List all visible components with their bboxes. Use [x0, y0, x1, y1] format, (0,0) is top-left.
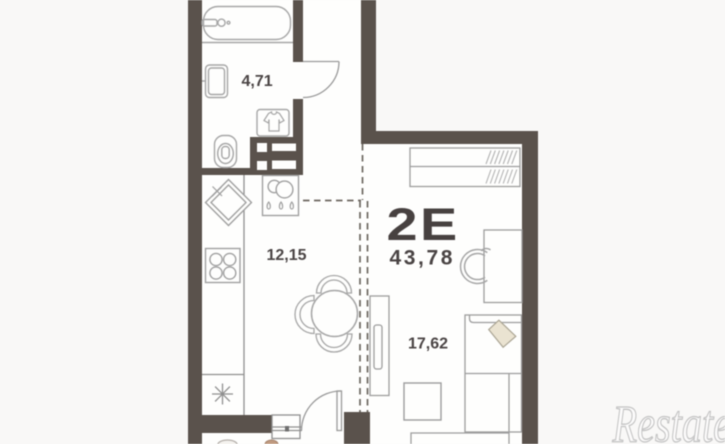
svg-text:Restate: Restate: [612, 395, 725, 444]
svg-text:2E: 2E: [387, 199, 460, 250]
svg-text:4,71: 4,71: [242, 73, 273, 90]
svg-text:17,62: 17,62: [408, 336, 448, 353]
svg-text:12,15: 12,15: [267, 247, 307, 264]
svg-text:43,78: 43,78: [390, 247, 456, 270]
